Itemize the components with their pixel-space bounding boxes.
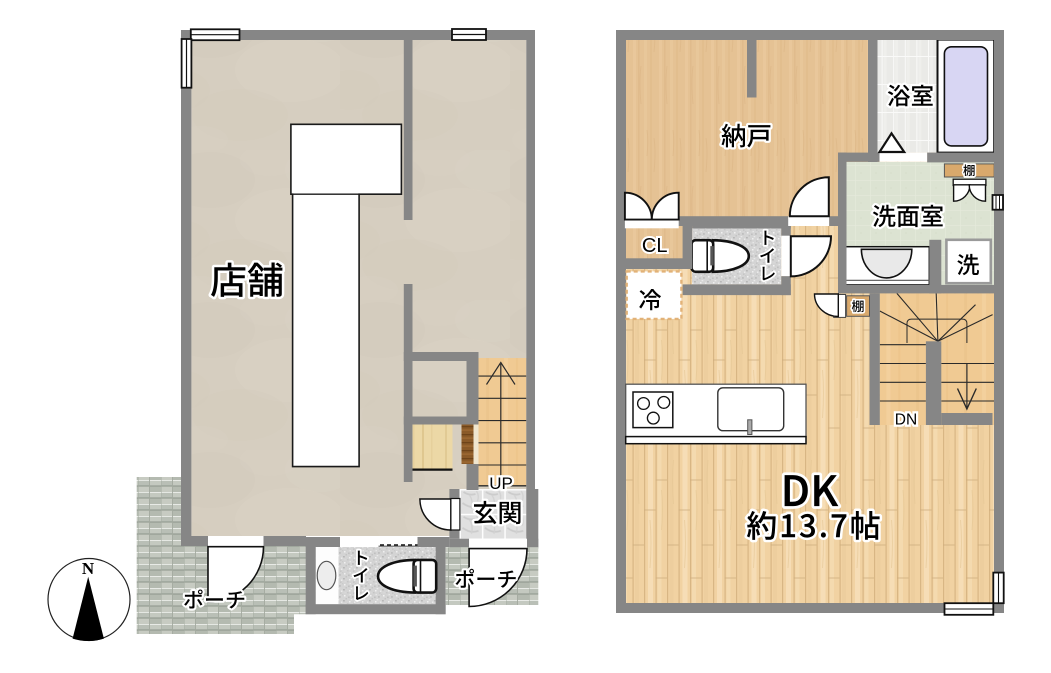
svg-text:N: N: [82, 559, 95, 578]
svg-text:DN: DN: [895, 411, 917, 428]
svg-text:UP: UP: [489, 474, 513, 493]
svg-text:CL: CL: [642, 235, 668, 257]
